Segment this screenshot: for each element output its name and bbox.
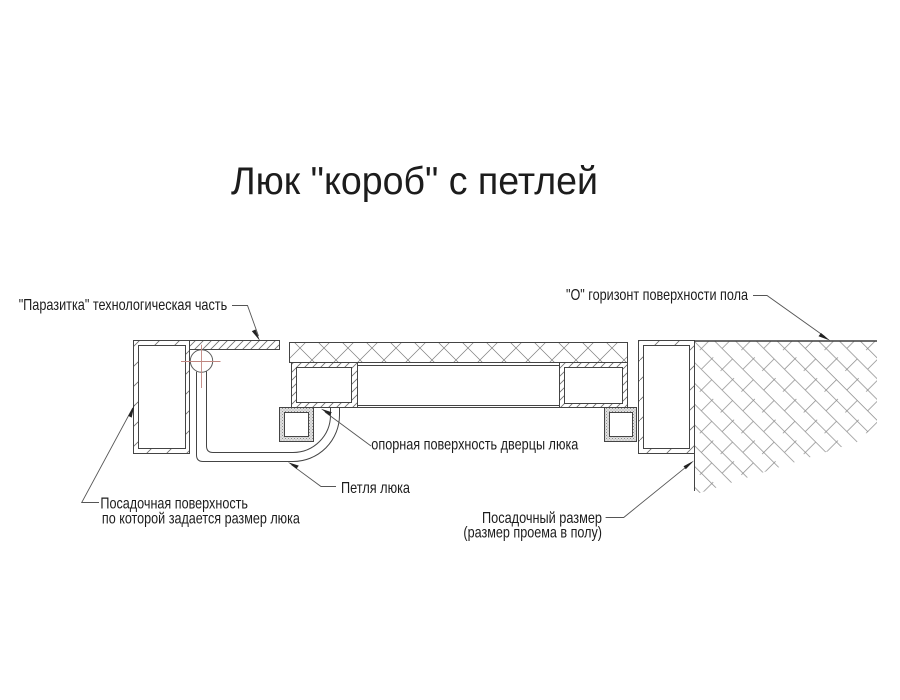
- svg-text:(размер проема в полу): (размер проема в полу): [463, 525, 602, 542]
- svg-text:"О" горизонт поверхности пола: "О" горизонт поверхности пола: [566, 287, 748, 304]
- svg-text:Петля люка: Петля люка: [341, 480, 410, 497]
- svg-text:Люк "короб" с петлей: Люк "короб" с петлей: [231, 160, 598, 203]
- svg-text:по которой задается размер люк: по которой задается размер люка: [102, 511, 300, 528]
- svg-text:"Паразитка" технологическая ча: "Паразитка" технологическая часть: [19, 297, 228, 314]
- svg-text:опорная поверхность дверцы люк: опорная поверхность дверцы люка: [371, 437, 578, 454]
